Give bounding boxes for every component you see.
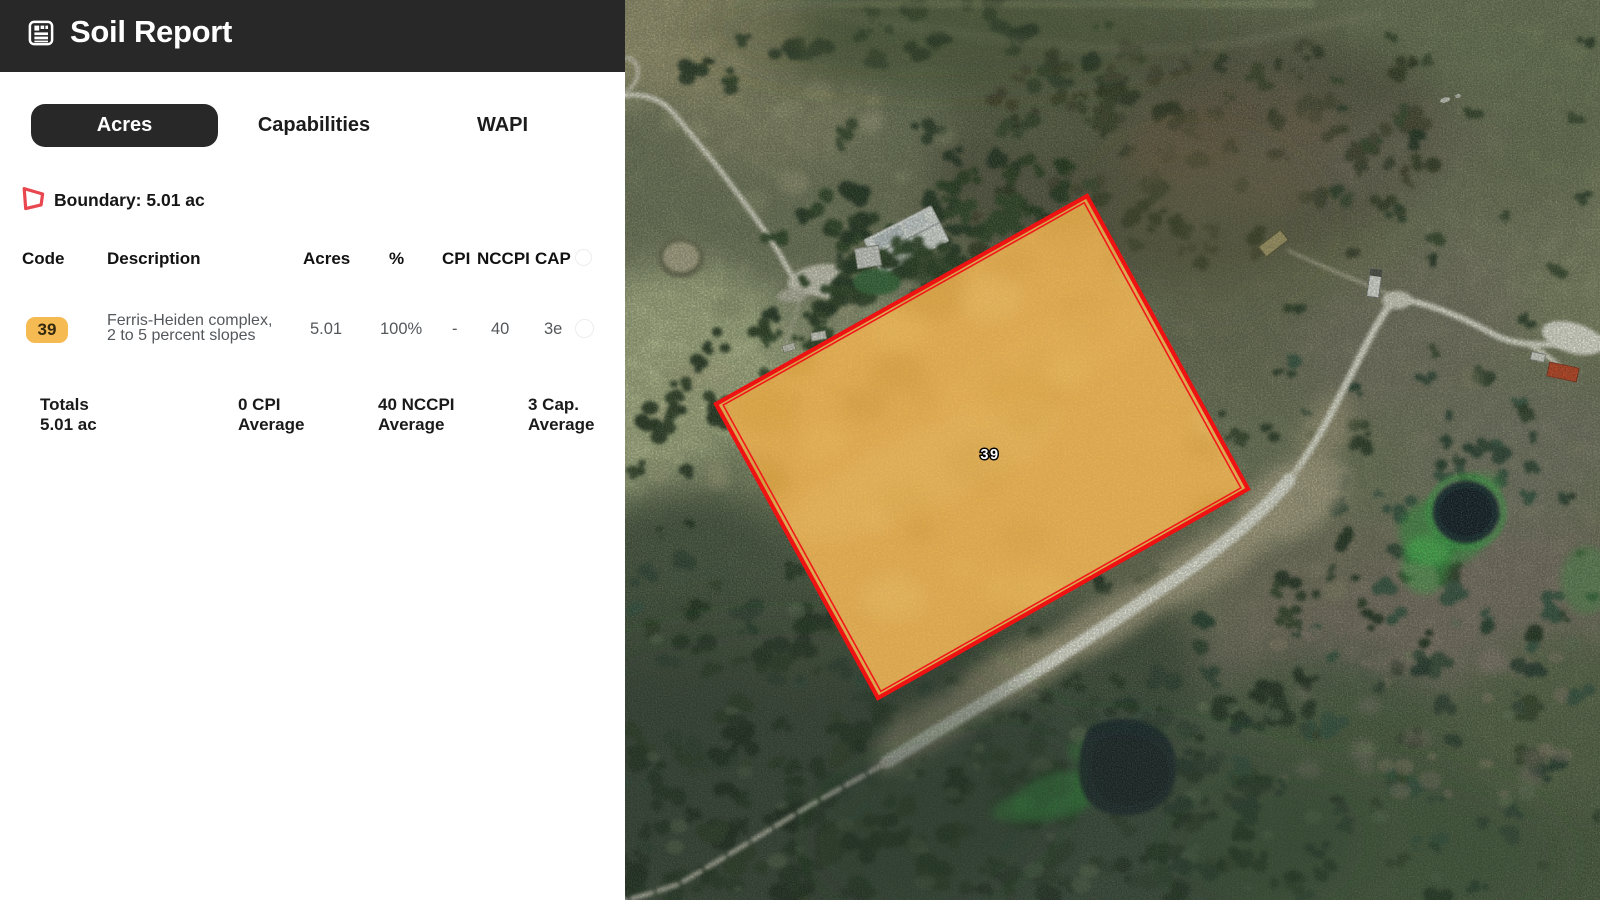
svg-text:39: 39: [980, 447, 999, 463]
